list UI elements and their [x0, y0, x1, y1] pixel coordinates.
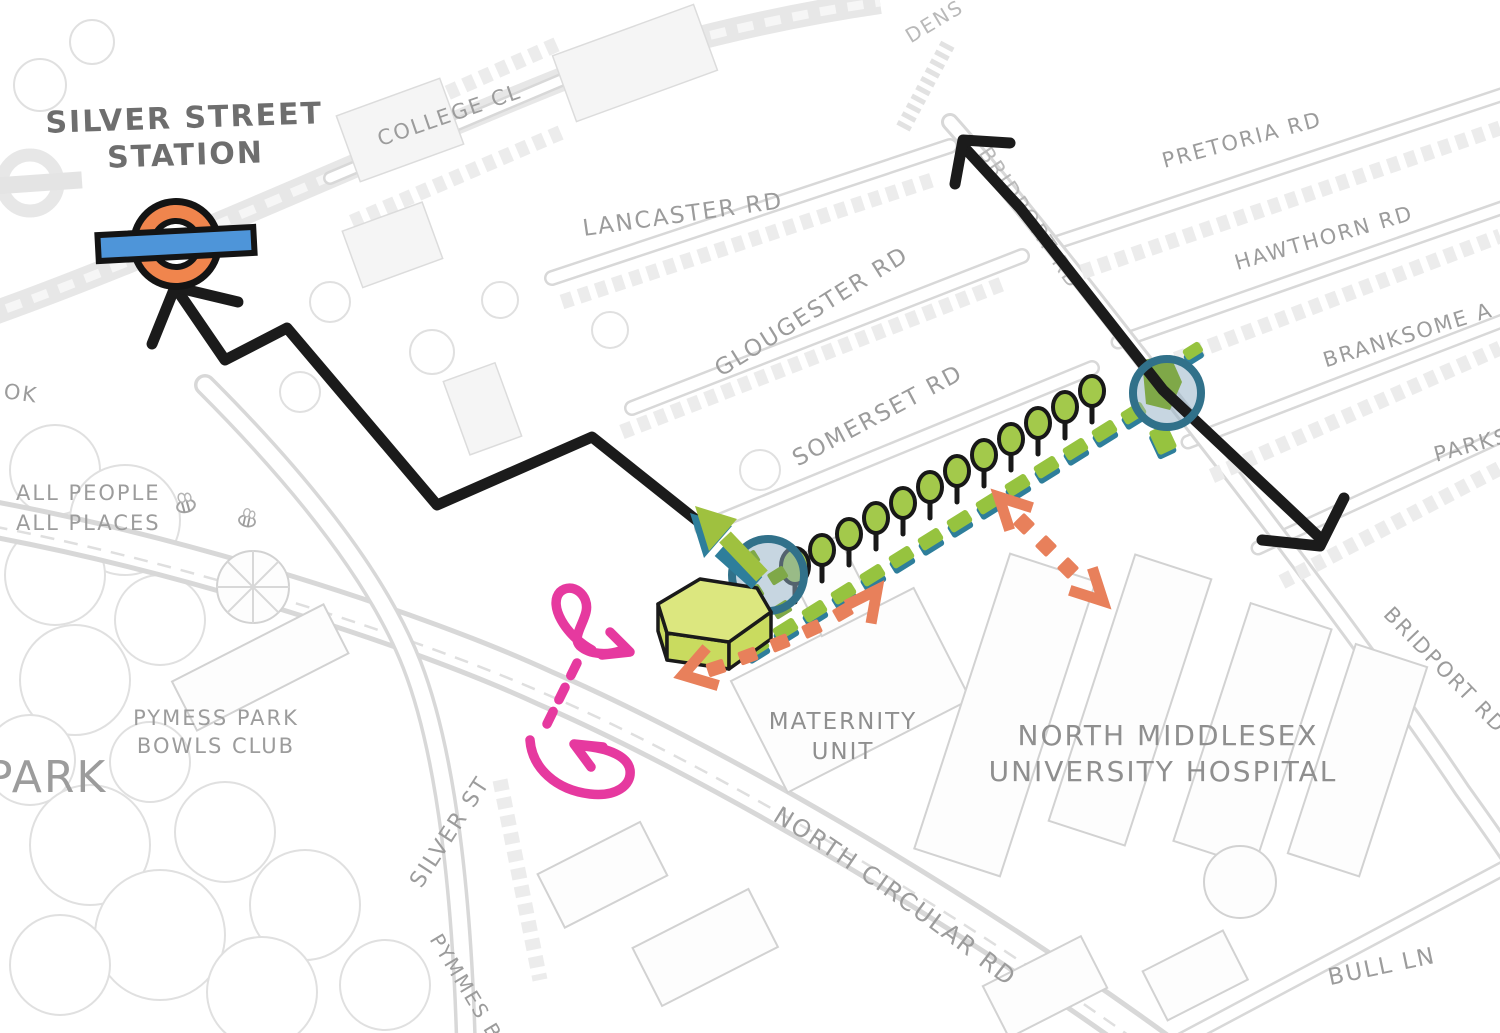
bee-icon	[238, 507, 257, 528]
label-all-people-line2: ALL PLACES	[16, 511, 161, 535]
label-all-people-line1: ALL PEOPLE	[16, 481, 161, 505]
label-hospital-line2: UNIVERSITY HOSPITAL	[989, 755, 1338, 788]
street-tree	[1026, 408, 1050, 454]
label-bowls-line2: BOWLS CLUB	[137, 734, 295, 758]
footbridge	[903, 44, 948, 128]
street-tree	[1053, 392, 1077, 438]
label-hospital-line1: NORTH MIDDLESEX	[1018, 719, 1319, 752]
building-blocks	[172, 4, 1427, 1033]
street-tree	[945, 456, 969, 502]
label-brook-partial: OK	[2, 379, 39, 408]
faded-roundel-icon	[0, 155, 83, 211]
label-station-line1: SILVER STREET	[45, 96, 324, 141]
map-canvas: COLLEGE CL DENS LANCASTER RD GLOUGESTER …	[0, 0, 1500, 1033]
label-park: PARK	[0, 752, 107, 803]
street-tree	[1080, 376, 1104, 422]
street-tree	[918, 472, 942, 518]
street-tree	[864, 503, 888, 549]
label-gardens-partial: DENS	[901, 0, 968, 48]
street-tree	[891, 488, 915, 534]
label-maternity-line2: UNIT	[812, 739, 875, 765]
label-maternity-line1: MATERNITY	[769, 709, 917, 735]
street-tree	[999, 424, 1023, 470]
label-station-line2: STATION	[107, 135, 265, 175]
street-tree	[972, 440, 996, 486]
label-bowls-line1: PYMESS PARK	[133, 706, 299, 730]
